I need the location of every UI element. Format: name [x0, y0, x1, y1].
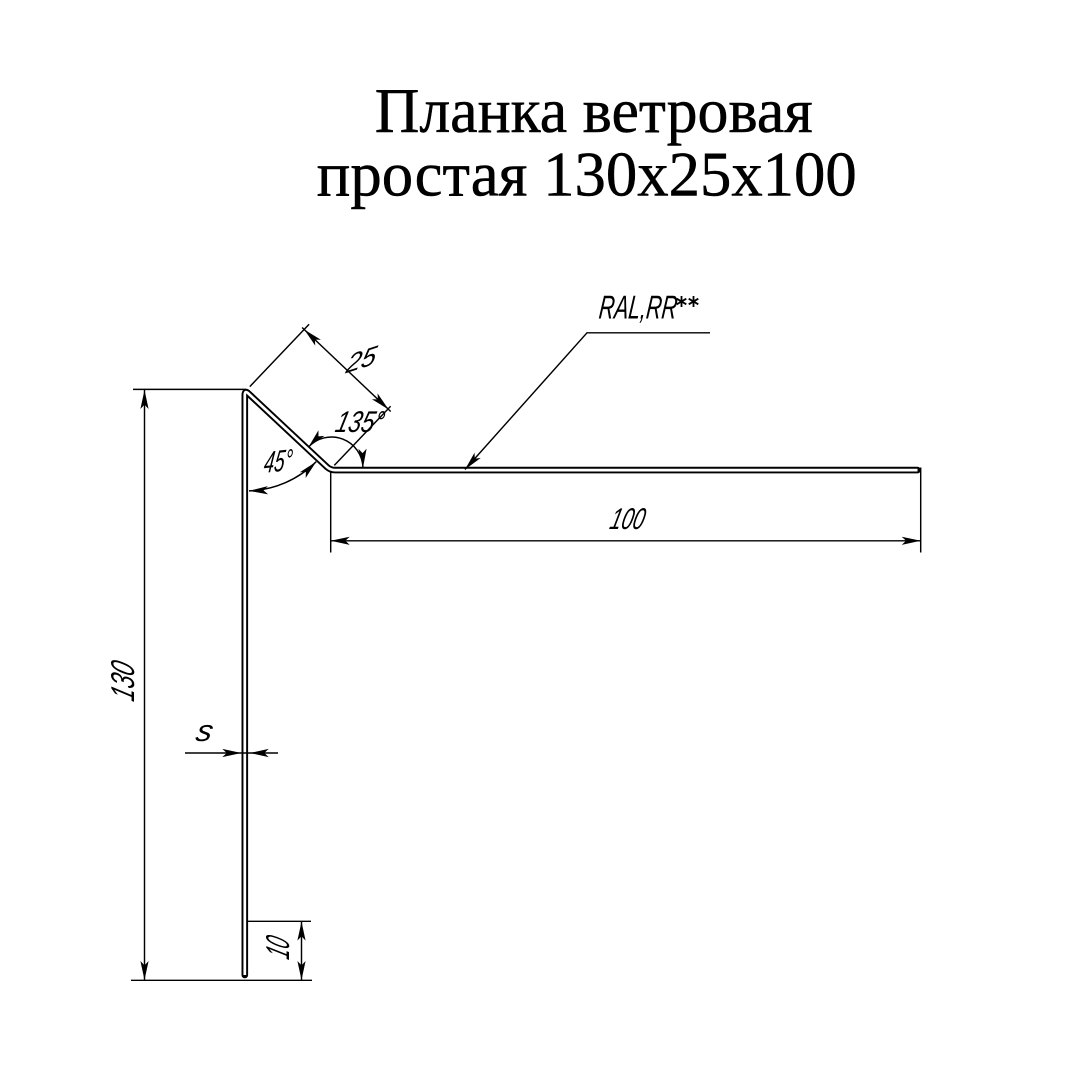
svg-text:135°: 135°	[332, 405, 388, 438]
svg-text:RAL,RR: RAL,RR	[597, 290, 679, 327]
svg-text:45°: 45°	[262, 443, 295, 480]
svg-text:Планка ветровая: Планка ветровая	[375, 75, 813, 146]
svg-text:простая 130х25х100: простая 130х25х100	[317, 139, 857, 210]
